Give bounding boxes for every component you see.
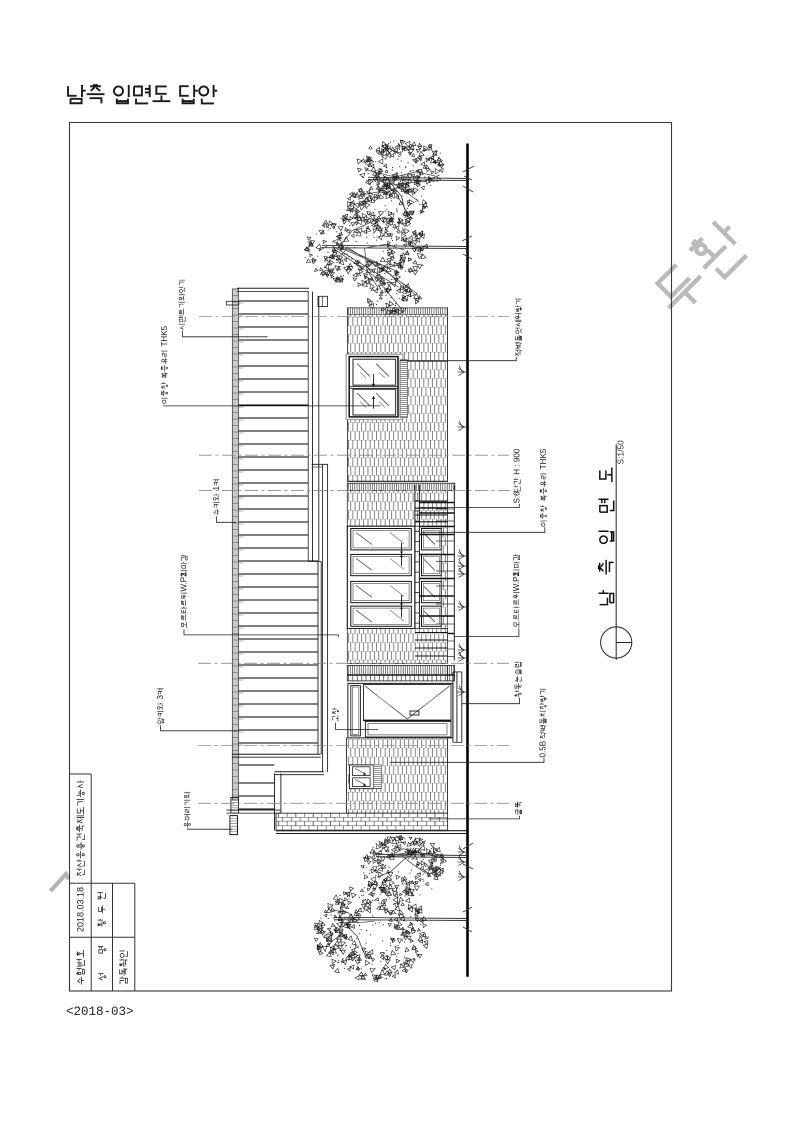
svg-text:THK5: THK5	[539, 448, 548, 469]
svg-text:H : 900: H : 900	[513, 448, 522, 475]
svg-text:0.5B: 0.5B	[539, 741, 548, 758]
svg-text:1: 1	[212, 485, 221, 490]
svg-text:3: 3	[156, 694, 165, 699]
svg-text:S:6: S:6	[513, 491, 522, 504]
svg-text:<2018-03>: <2018-03>	[66, 1005, 134, 1019]
svg-text:S:1/50: S:1/50	[616, 440, 626, 465]
svg-text:W.P2: W.P2	[512, 571, 521, 591]
svg-text:2018.03.18: 2018.03.18	[75, 887, 85, 932]
svg-text:W.P2: W.P2	[180, 572, 189, 592]
svg-text:THK5: THK5	[160, 325, 169, 346]
